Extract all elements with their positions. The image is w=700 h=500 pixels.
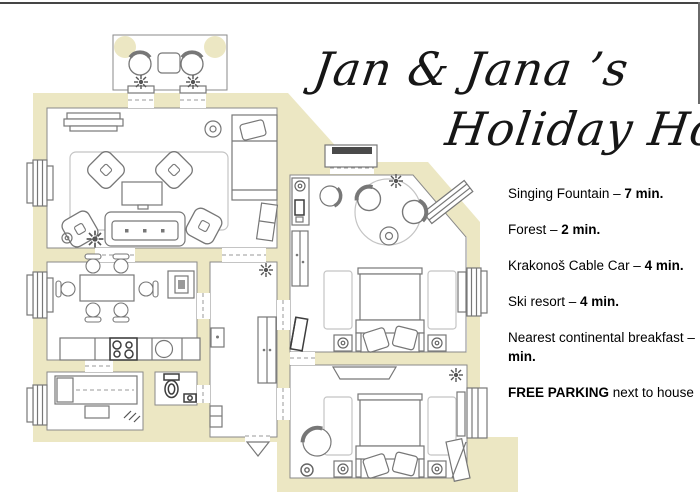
window-bathroom-left — [27, 385, 47, 425]
dining-chair — [113, 254, 129, 273]
kitchen — [60, 338, 200, 360]
hall-wardrobe — [258, 317, 276, 383]
living-plant-icon — [87, 231, 104, 248]
tv-stand — [122, 182, 162, 205]
floor-plan — [0, 0, 700, 500]
bedroom1-plant-icon — [389, 174, 403, 188]
sofa — [105, 212, 185, 246]
kitchen-counter — [60, 338, 200, 360]
hallway-plant-icon — [259, 263, 273, 277]
wall-shelf — [333, 367, 396, 379]
dining-chair — [85, 254, 101, 273]
window-dining-left — [27, 272, 53, 318]
balcony-chair-right — [181, 52, 203, 75]
dining-table — [80, 275, 134, 301]
bath-table — [85, 406, 109, 418]
bedroom1-wardrobe — [292, 231, 308, 286]
balcony-plant-right-icon — [186, 75, 200, 89]
balcony-table — [158, 53, 180, 73]
dining-chair — [85, 303, 101, 322]
bedroom2-plant-icon — [449, 368, 463, 382]
entry-door-swing — [247, 442, 269, 456]
window-bedroom2-right — [457, 388, 487, 438]
balcony-plant-left-icon — [134, 75, 148, 89]
floor-lamp-icon — [301, 464, 313, 476]
cabinet — [168, 271, 194, 298]
hall-shelf — [210, 406, 222, 427]
single-bed — [232, 115, 277, 200]
desk — [292, 178, 309, 225]
window-bedroom1-right — [458, 268, 487, 316]
window-living-left — [27, 160, 53, 206]
bedroom1-balcony-door — [325, 145, 377, 167]
sideboard — [67, 113, 120, 119]
dining-chair — [113, 303, 129, 322]
balcony-pillar-right — [204, 36, 226, 58]
balcony-chair-left — [129, 52, 151, 75]
dining-chair — [56, 281, 75, 297]
dining-chair — [139, 281, 158, 297]
